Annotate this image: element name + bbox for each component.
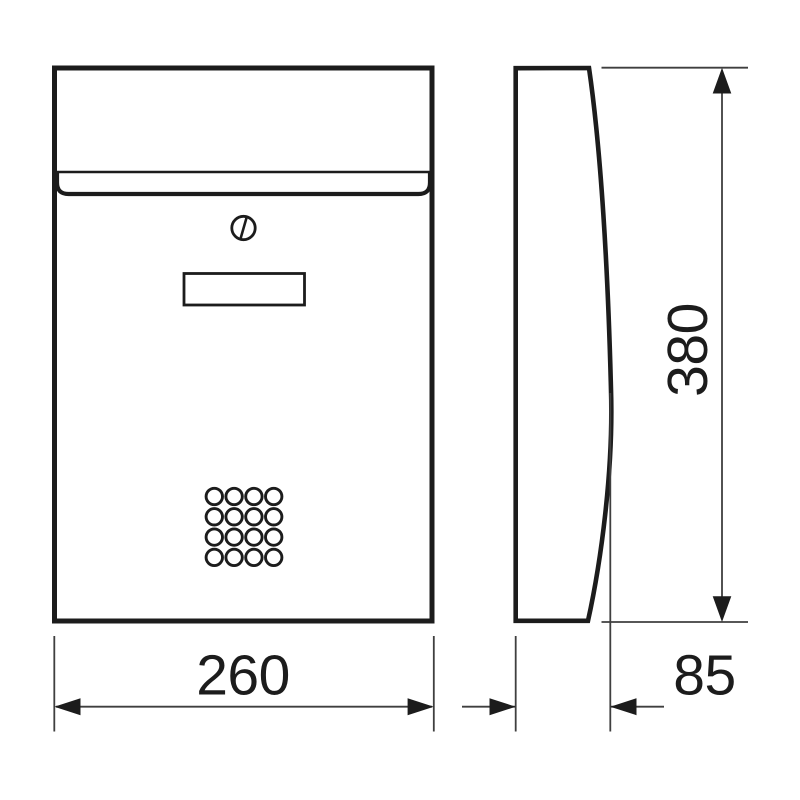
- height-arrowhead-down: [713, 596, 732, 622]
- letterbox-drawing: 380 260 85: [0, 0, 800, 800]
- width-arrowhead-left: [54, 698, 80, 715]
- name-plate: [184, 274, 305, 306]
- depth-arrowhead-right-pointing: [490, 698, 516, 715]
- width-arrowhead-right: [408, 698, 434, 715]
- side-view: [516, 68, 612, 621]
- depth-arrowhead-left-pointing: [610, 698, 636, 715]
- height-dimension-label: 380: [656, 303, 720, 397]
- front-view: [55, 68, 433, 621]
- cylinder-lock: [232, 216, 255, 239]
- width-dimension-label: 260: [196, 644, 290, 708]
- side-profile-outline: [516, 68, 612, 621]
- height-arrowhead-up: [713, 68, 732, 94]
- depth-dimension-label: 85: [673, 644, 735, 708]
- dimension-width: 260: [54, 636, 434, 732]
- dimension-height: 380: [602, 68, 749, 622]
- technical-drawing-canvas: 380 260 85: [0, 0, 800, 800]
